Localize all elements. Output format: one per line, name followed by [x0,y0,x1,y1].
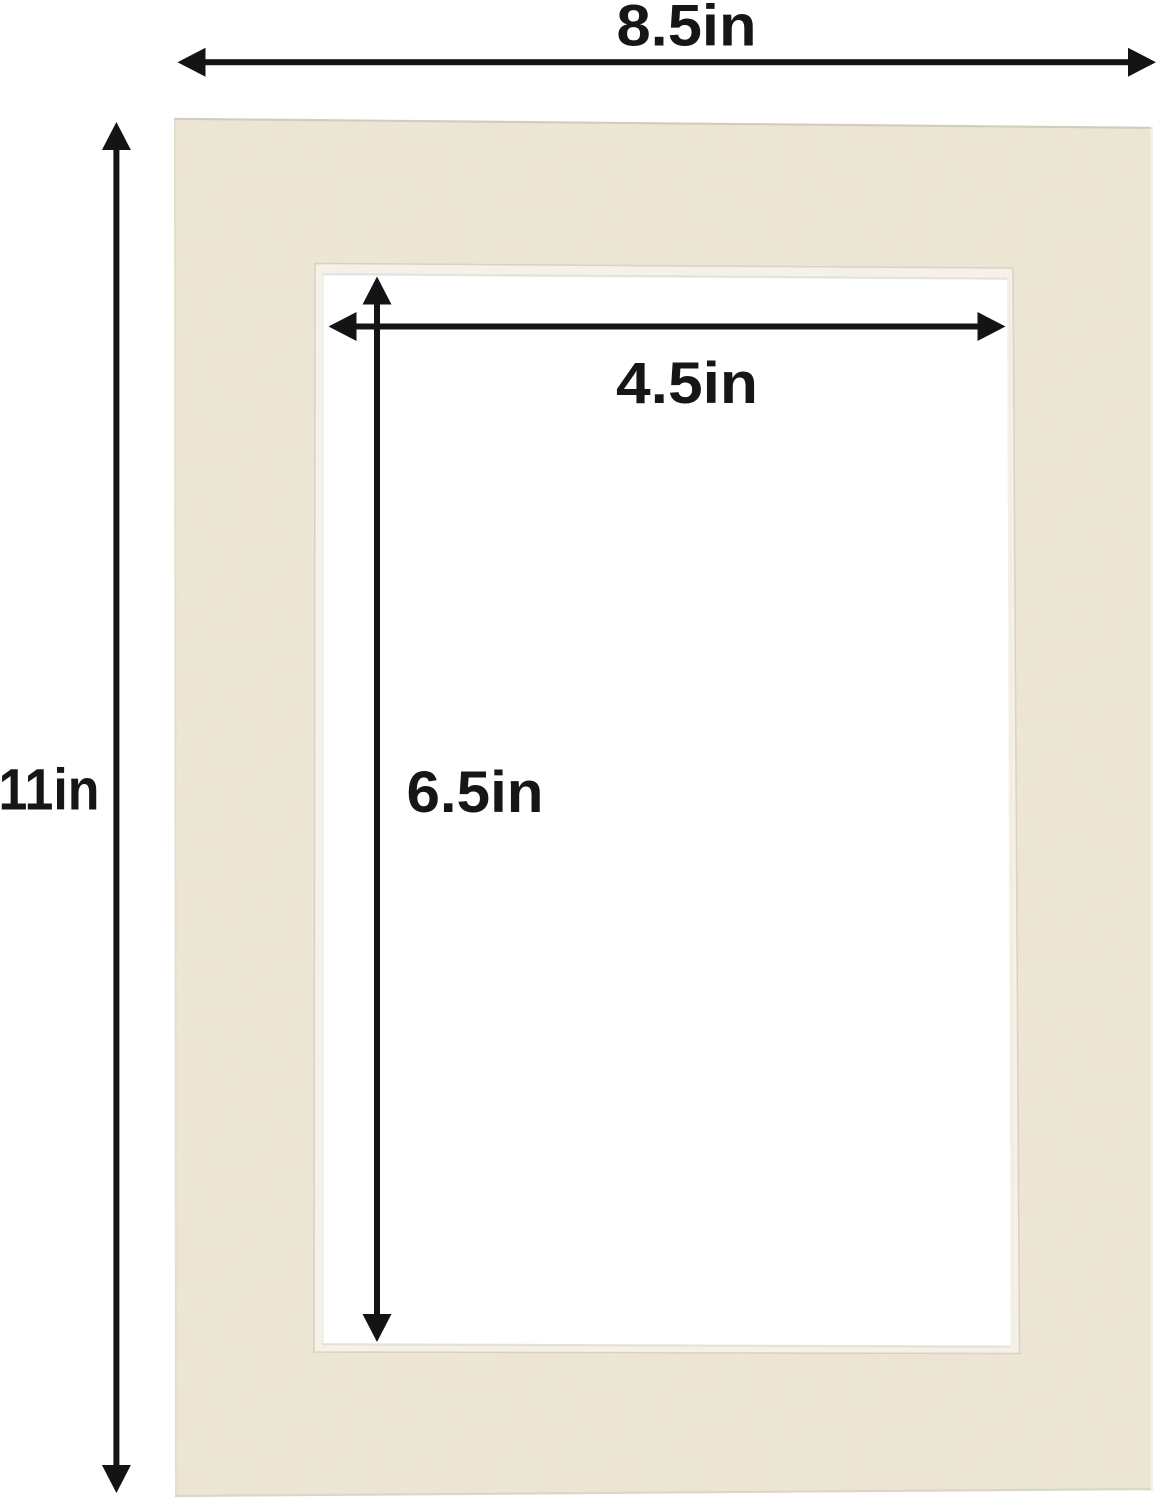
svg-text:4.5in: 4.5in [616,351,758,416]
svg-text:8.5in: 8.5in [617,0,757,59]
svg-text:11in: 11in [0,758,100,823]
svg-text:6.5in: 6.5in [407,760,544,825]
